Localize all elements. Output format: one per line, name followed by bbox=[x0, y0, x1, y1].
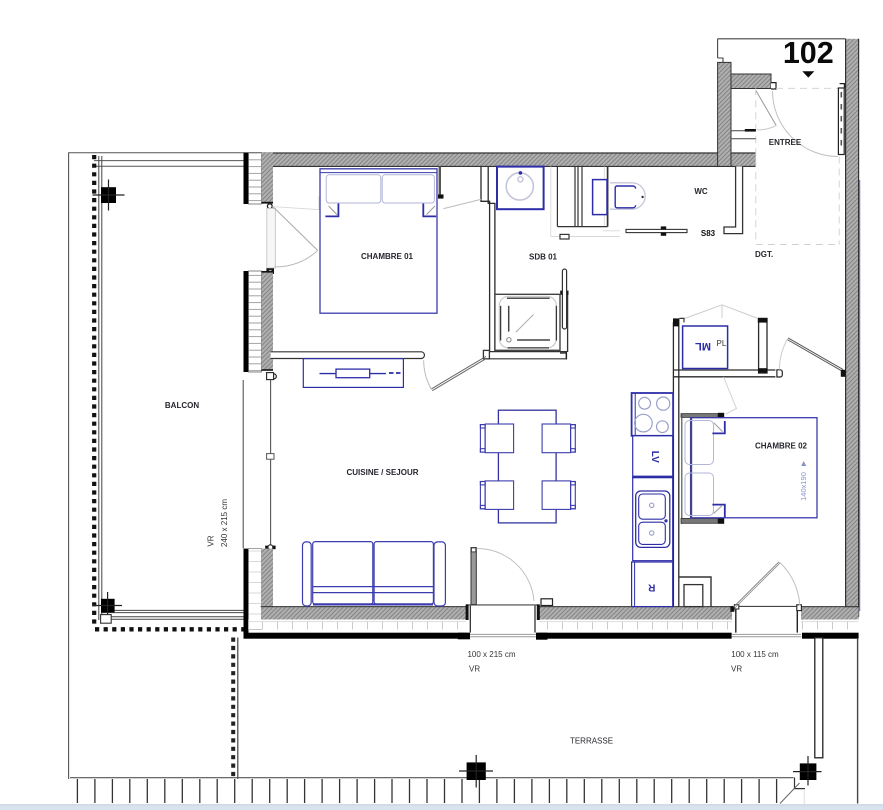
svg-text:100 x 215 cm: 100 x 215 cm bbox=[467, 650, 515, 659]
svg-text:CUISINE / SEJOUR: CUISINE / SEJOUR bbox=[346, 468, 418, 477]
svg-text:100 x 115 cm: 100 x 115 cm bbox=[731, 650, 779, 659]
svg-text:VR: VR bbox=[469, 665, 480, 674]
svg-text:S83: S83 bbox=[701, 229, 716, 238]
svg-text:WC: WC bbox=[694, 187, 708, 196]
svg-text:240 x 215 cm: 240 x 215 cm bbox=[220, 499, 229, 547]
svg-text:VR: VR bbox=[731, 665, 742, 674]
svg-text:ENTREE: ENTREE bbox=[769, 138, 802, 147]
svg-text:BALCON: BALCON bbox=[165, 401, 199, 410]
svg-text:140x190: 140x190 bbox=[799, 472, 808, 501]
svg-text:R: R bbox=[647, 582, 655, 593]
svg-text:102: 102 bbox=[783, 36, 834, 70]
svg-text:PL: PL bbox=[717, 339, 727, 348]
svg-text:CHAMBRE 02: CHAMBRE 02 bbox=[755, 442, 808, 451]
svg-text:LV: LV bbox=[649, 451, 660, 463]
svg-text:DGT.: DGT. bbox=[755, 250, 773, 259]
svg-text:ML: ML bbox=[695, 340, 711, 352]
svg-text:TERRASSE: TERRASSE bbox=[570, 737, 613, 746]
svg-text:CHAMBRE 01: CHAMBRE 01 bbox=[361, 252, 414, 261]
svg-text:SDB 01: SDB 01 bbox=[529, 253, 558, 262]
svg-text:VR: VR bbox=[207, 535, 216, 546]
